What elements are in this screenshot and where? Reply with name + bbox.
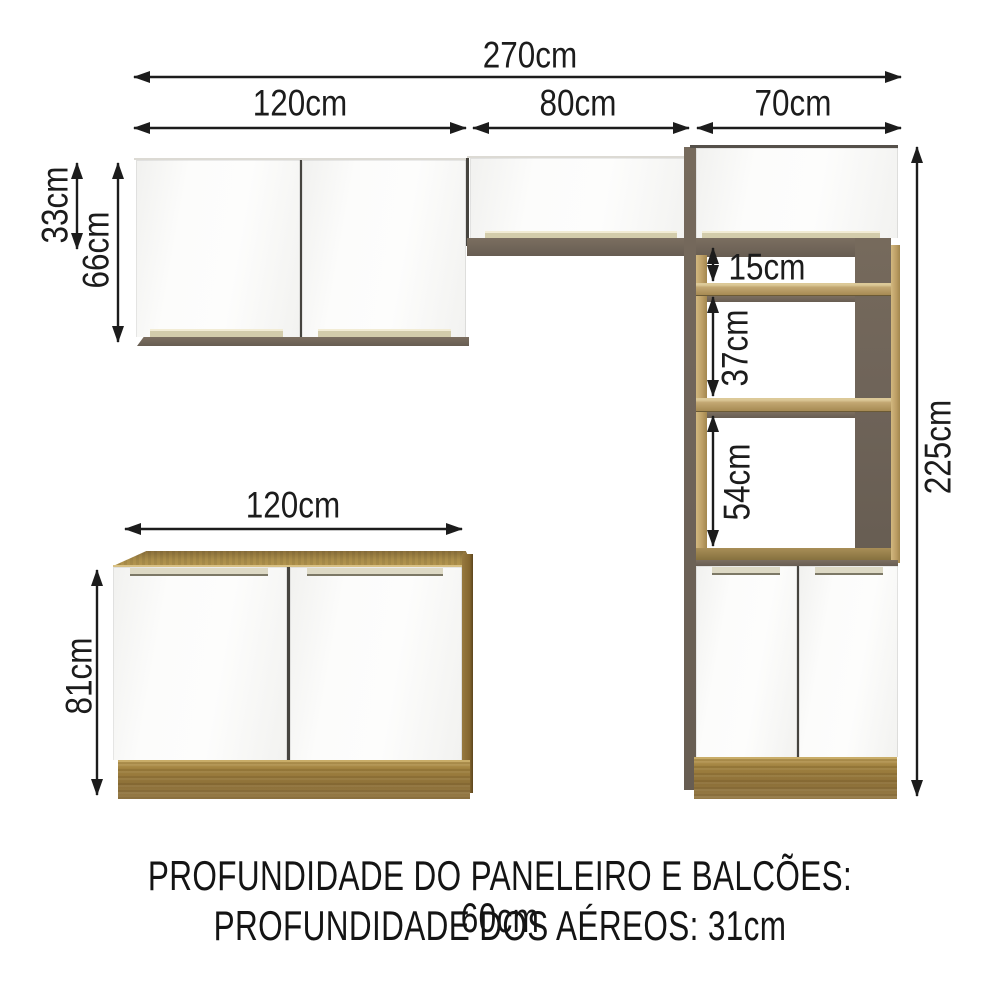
wall-cabinet-left-door-right [302, 160, 466, 337]
base-cabinet-plinth [118, 760, 470, 799]
dimension-wall-left-height: 66cm [78, 212, 115, 289]
niche-shelf-2-shadow [707, 412, 855, 418]
wall-cabinet-middle-underside [467, 238, 696, 256]
dimension-base-width: 120cm [246, 487, 340, 524]
dimension-wall-left-width: 120cm [253, 85, 347, 122]
tower-plinth [694, 757, 897, 799]
base-cabinet-handle-left [130, 568, 268, 576]
depth-note-wall-cabinets: PROFUNDIDADE DOS AÉREOS: 31cm [125, 905, 875, 947]
dimension-tower-height: 225cm [920, 400, 957, 494]
dimension-total-width: 270cm [483, 37, 577, 74]
tower-lower-handle-right [815, 567, 883, 575]
dimension-wall-middle-height: 33cm [37, 167, 74, 244]
wall-cabinet-middle-left-gap [466, 158, 469, 246]
dimension-niche-bottom-gap: 54cm [719, 444, 756, 521]
dimension-niche-middle-gap: 37cm [717, 310, 754, 387]
tower-lower-door-gap [797, 566, 799, 757]
dimension-base-height: 81cm [61, 638, 98, 715]
tower-lower-door-right [799, 566, 898, 757]
wall-cabinet-left-underside [137, 337, 469, 346]
kitchen-cabinet-dimension-diagram: 270cm 120cm 80cm 70cm 33cm 66cm 15cm 37c… [0, 0, 1000, 1000]
dimension-wall-middle-width: 80cm [540, 85, 617, 122]
base-cabinet-right-side [462, 554, 473, 793]
tower-top-door [696, 148, 898, 238]
base-cabinet-door-gap [287, 567, 290, 760]
base-cabinet-top [112, 551, 473, 566]
tower-left-side-panel [684, 147, 696, 790]
wall-cabinet-middle-door [470, 158, 692, 238]
base-cabinet-door-left [113, 567, 287, 760]
niche-shelf-1-shadow [707, 296, 855, 302]
niche-right-upright [891, 245, 900, 563]
wall-cabinet-left-door-left [136, 160, 300, 337]
tower-lower-door-left [696, 566, 797, 757]
niche-shelf-2 [696, 398, 891, 412]
tower-lower-handle-left [712, 567, 780, 575]
niche-floor [696, 548, 891, 560]
wall-cabinet-left-door-gap [300, 160, 302, 337]
dimension-tower-width: 70cm [755, 85, 832, 122]
base-cabinet-handle-right [307, 568, 443, 576]
base-cabinet-door-right [290, 567, 462, 760]
dimension-niche-top-gap: 15cm [729, 249, 806, 286]
